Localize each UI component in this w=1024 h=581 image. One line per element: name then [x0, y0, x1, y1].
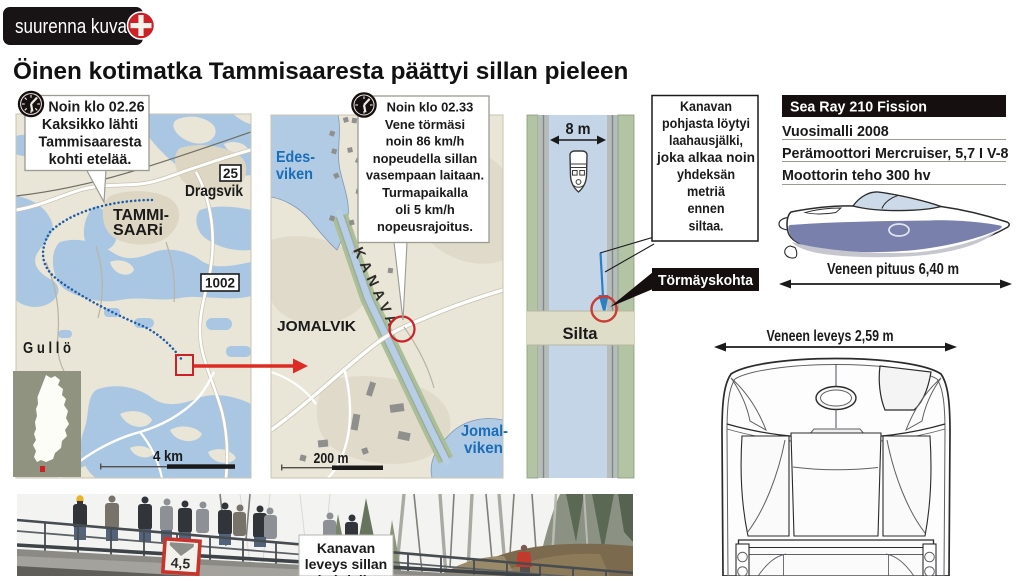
svg-text:4,5: 4,5	[170, 554, 191, 571]
svg-text:Edes-: Edes-	[276, 149, 315, 166]
svg-text:JOMALVIK: JOMALVIK	[277, 318, 356, 335]
svg-text:noin 86 km/h: noin 86 km/h	[386, 134, 465, 149]
svg-text:viken: viken	[276, 166, 313, 183]
svg-text:4 km: 4 km	[153, 448, 183, 465]
svg-text:Veneen pituus 6,40 m: Veneen pituus 6,40 m	[827, 261, 959, 278]
svg-text:kohti etelää.: kohti etelää.	[49, 152, 132, 168]
svg-text:kohdalla: kohdalla	[318, 572, 375, 576]
svg-text:Vene törmäsi: Vene törmäsi	[385, 117, 465, 132]
svg-text:Turmapaikalla: Turmapaikalla	[382, 185, 469, 200]
svg-text:Dragsvik: Dragsvik	[185, 183, 243, 200]
svg-text:Kanavan: Kanavan	[680, 98, 732, 114]
svg-text:joka alkaa noin: joka alkaa noin	[656, 149, 755, 165]
svg-text:SAARi: SAARi	[113, 222, 163, 239]
svg-text:oli 5 km/h: oli 5 km/h	[395, 202, 455, 217]
svg-text:Öinen kotimatka Tammisaaresta: Öinen kotimatka Tammisaaresta päättyi si…	[13, 58, 628, 85]
svg-text:viken: viken	[464, 440, 503, 457]
svg-text:Perämoottori Mercruiser, 5,7 I: Perämoottori Mercruiser, 5,7 I V-8	[782, 146, 1009, 162]
svg-text:metriä: metriä	[687, 183, 725, 199]
svg-text:1002: 1002	[205, 276, 235, 291]
svg-text:200 m: 200 m	[314, 450, 349, 467]
svg-text:vasempaan laitaan.: vasempaan laitaan.	[366, 168, 484, 183]
svg-text:Tammisaaresta: Tammisaaresta	[38, 135, 142, 151]
svg-text:yhdeksän: yhdeksän	[677, 166, 735, 182]
svg-text:laahausjälki,: laahausjälki,	[669, 132, 743, 148]
svg-text:8 m: 8 m	[566, 121, 591, 138]
svg-text:leveys sillan: leveys sillan	[305, 556, 388, 572]
svg-text:Jomal-: Jomal-	[461, 423, 508, 440]
svg-text:Veneen leveys 2,59 m: Veneen leveys 2,59 m	[767, 328, 894, 345]
svg-text:Noin klo 02.33: Noin klo 02.33	[387, 100, 474, 115]
svg-text:nopeusrajoitus.: nopeusrajoitus.	[377, 219, 473, 234]
svg-text:G u l l ö: G u l l ö	[23, 340, 71, 357]
svg-text:suurenna kuva: suurenna kuva	[15, 16, 128, 38]
svg-text:Vuosimalli 2008: Vuosimalli 2008	[782, 124, 889, 140]
svg-text:ennen: ennen	[688, 200, 725, 216]
svg-text:siltaa.: siltaa.	[689, 217, 724, 233]
svg-text:nopeudella sillan: nopeudella sillan	[373, 151, 478, 166]
svg-text:Moottorin teho 300 hv: Moottorin teho 300 hv	[782, 168, 931, 184]
svg-text:Kanavan: Kanavan	[317, 540, 375, 556]
svg-text:Sea Ray 210 Fission: Sea Ray 210 Fission	[790, 99, 927, 116]
svg-text:25: 25	[223, 166, 239, 181]
svg-text:pohjasta löytyi: pohjasta löytyi	[662, 115, 750, 131]
svg-text:Törmäyskohta: Törmäyskohta	[658, 272, 753, 289]
svg-text:Noin klo 02.26: Noin klo 02.26	[48, 100, 144, 116]
svg-text:Silta: Silta	[563, 324, 599, 343]
svg-text:Kaksikko lähti: Kaksikko lähti	[42, 117, 138, 133]
